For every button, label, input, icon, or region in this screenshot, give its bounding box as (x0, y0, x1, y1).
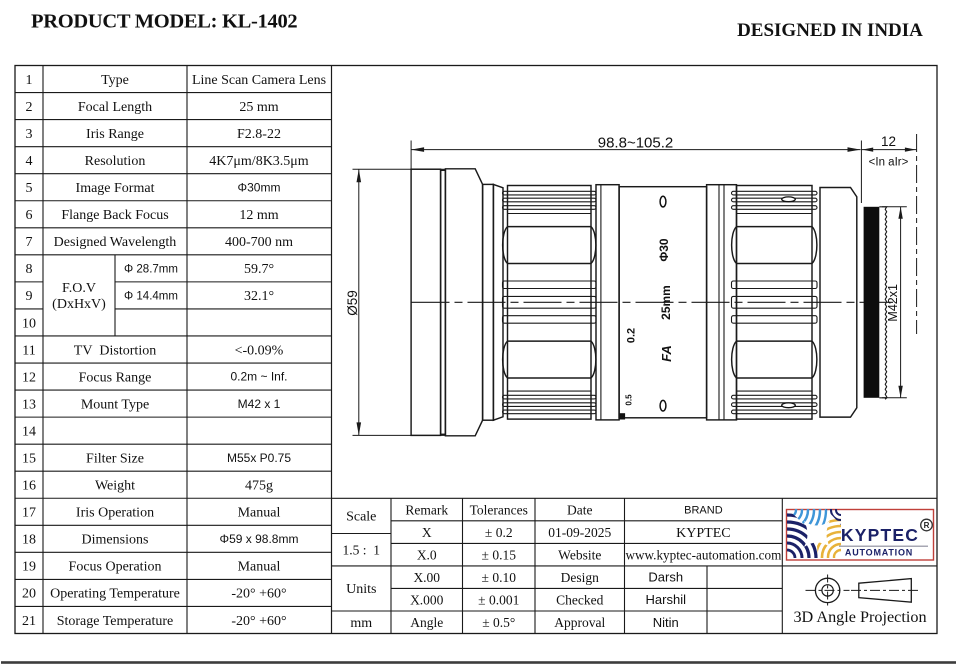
svg-text:Nitin: Nitin (653, 615, 679, 630)
svg-text:± 0.5°: ± 0.5° (482, 615, 515, 630)
svg-text:X.0: X.0 (417, 547, 437, 562)
svg-text:19: 19 (22, 560, 36, 575)
svg-text:Dimensions: Dimensions (82, 533, 149, 548)
svg-text:(DxHxV): (DxHxV) (52, 297, 106, 312)
svg-text:12: 12 (22, 370, 36, 385)
svg-text:<In aIr>: <In aIr> (869, 157, 909, 169)
svg-text:Tolerances: Tolerances (470, 502, 528, 517)
svg-text:Φ30mm: Φ30mm (238, 180, 281, 194)
svg-text:Flange Back Focus: Flange Back Focus (61, 208, 168, 223)
svg-text:Angle: Angle (410, 615, 443, 630)
svg-text:0.2: 0.2 (626, 328, 638, 343)
svg-text:12: 12 (881, 134, 896, 149)
svg-text:X.000: X.000 (410, 593, 444, 608)
svg-text:98.8~105.2: 98.8~105.2 (598, 134, 674, 151)
svg-text:± 0.001: ± 0.001 (478, 593, 519, 608)
svg-text:BRAND: BRAND (684, 505, 723, 517)
svg-text:15: 15 (22, 451, 36, 466)
svg-text:Checked: Checked (556, 593, 603, 608)
svg-text:32.1°: 32.1° (244, 289, 274, 304)
svg-text:Line Scan Camera Lens: Line Scan Camera Lens (192, 73, 326, 88)
svg-text:± 0.10: ± 0.10 (482, 570, 517, 585)
svg-text:Remark: Remark (405, 502, 448, 517)
svg-text:R: R (924, 521, 930, 530)
svg-text:PRODUCT MODEL: KL-1402: PRODUCT MODEL: KL-1402 (31, 11, 297, 33)
svg-text:± 0.2: ± 0.2 (485, 525, 513, 540)
svg-text:M42x1: M42x1 (886, 284, 900, 322)
svg-text:Focal Length: Focal Length (78, 100, 152, 115)
svg-text:± 0.15: ± 0.15 (482, 547, 517, 562)
svg-text:Harshil: Harshil (646, 592, 687, 607)
svg-text:2: 2 (26, 100, 33, 115)
svg-text:Iris Range: Iris Range (86, 127, 144, 142)
svg-text:10: 10 (22, 316, 36, 331)
svg-text:18: 18 (22, 533, 36, 548)
svg-text:12 mm: 12 mm (239, 208, 278, 223)
svg-text:400-700 nm: 400-700 nm (225, 235, 293, 250)
svg-text:Type: Type (101, 73, 129, 88)
svg-text:Focus Range: Focus Range (79, 370, 152, 385)
svg-text:www.kyptec-automation.com: www.kyptec-automation.com (625, 547, 782, 562)
svg-text:F.O.V: F.O.V (62, 281, 96, 296)
svg-text:Date: Date (567, 502, 592, 517)
svg-text:Weight: Weight (95, 479, 135, 494)
svg-text:Mount Type: Mount Type (81, 397, 149, 412)
svg-text:7: 7 (26, 235, 33, 250)
svg-text:3D Angle Projection: 3D Angle Projection (793, 608, 926, 626)
svg-text:16: 16 (22, 479, 36, 494)
svg-text:Focus Operation: Focus Operation (69, 560, 162, 575)
svg-text:25mm: 25mm (659, 285, 673, 320)
svg-text:Darsh: Darsh (648, 570, 683, 585)
svg-text:11: 11 (22, 343, 35, 358)
svg-text:17: 17 (22, 506, 36, 521)
svg-text:-20° +60°: -20° +60° (231, 614, 286, 629)
svg-text:6: 6 (26, 208, 33, 223)
svg-text:Φ30: Φ30 (657, 238, 671, 262)
svg-text:Design: Design (561, 570, 599, 585)
svg-text:Scale: Scale (346, 510, 376, 525)
svg-text:F2.8-22: F2.8-22 (237, 127, 281, 142)
svg-text:59.7°: 59.7° (244, 262, 274, 277)
svg-text:5: 5 (26, 181, 33, 196)
svg-text:X.00: X.00 (413, 570, 440, 585)
svg-text:Website: Website (558, 547, 601, 562)
svg-text:21: 21 (22, 614, 36, 629)
svg-text:Manual: Manual (238, 560, 281, 575)
svg-text:TV Distortion: TV Distortion (74, 343, 156, 358)
svg-text:4: 4 (26, 154, 33, 169)
svg-text:<-0.09%: <-0.09% (235, 343, 284, 358)
svg-text:DESIGNED IN INDIA: DESIGNED IN INDIA (737, 20, 923, 41)
svg-text:mm: mm (350, 616, 372, 631)
svg-text:14: 14 (22, 424, 36, 439)
svg-text:13: 13 (22, 397, 36, 412)
svg-text:Operating Temperature: Operating Temperature (50, 587, 180, 602)
svg-text:Φ 28.7mm: Φ 28.7mm (124, 264, 178, 276)
svg-text:Manual: Manual (238, 506, 281, 521)
svg-text:M42 x 1: M42 x 1 (238, 397, 281, 411)
svg-text:FA: FA (659, 345, 674, 362)
svg-text:0.2m ~ Inf.: 0.2m ~ Inf. (230, 370, 287, 384)
svg-text:Resolution: Resolution (85, 154, 146, 169)
svg-text:Φ 14.4mm: Φ 14.4mm (124, 291, 178, 303)
svg-text:0.5: 0.5 (625, 394, 634, 406)
svg-text:Filter Size: Filter Size (86, 451, 144, 466)
svg-text:Designed Wavelength: Designed Wavelength (54, 235, 177, 250)
svg-text:M55x P0.75: M55x P0.75 (227, 451, 291, 465)
svg-text:9: 9 (26, 289, 33, 304)
svg-text:8: 8 (26, 262, 33, 277)
svg-text:AUTOMATION: AUTOMATION (845, 548, 913, 558)
svg-text:Ø59: Ø59 (345, 290, 360, 316)
svg-text:Approval: Approval (554, 615, 605, 630)
svg-text:20: 20 (22, 587, 36, 602)
svg-text:4K7μm/8K3.5μm: 4K7μm/8K3.5μm (209, 154, 309, 169)
svg-text:-20° +60°: -20° +60° (231, 587, 286, 602)
svg-text:KYPTEC: KYPTEC (676, 526, 730, 541)
svg-text:KYPTEC: KYPTEC (841, 525, 919, 545)
svg-text:1: 1 (26, 73, 33, 88)
svg-text:475g: 475g (245, 479, 273, 494)
svg-text:Iris Operation: Iris Operation (76, 506, 154, 521)
svg-text:Φ59 x 98.8mm: Φ59 x 98.8mm (220, 532, 299, 546)
svg-text:Units: Units (346, 582, 376, 597)
svg-text:25 mm: 25 mm (239, 100, 278, 115)
svg-text:01-09-2025: 01-09-2025 (548, 525, 611, 540)
svg-text:Image Format: Image Format (76, 181, 155, 196)
svg-text:1.5 : 1: 1.5 : 1 (342, 543, 380, 558)
svg-text:X: X (422, 525, 432, 540)
svg-text:Storage Temperature: Storage Temperature (57, 614, 174, 629)
svg-text:3: 3 (26, 127, 33, 142)
